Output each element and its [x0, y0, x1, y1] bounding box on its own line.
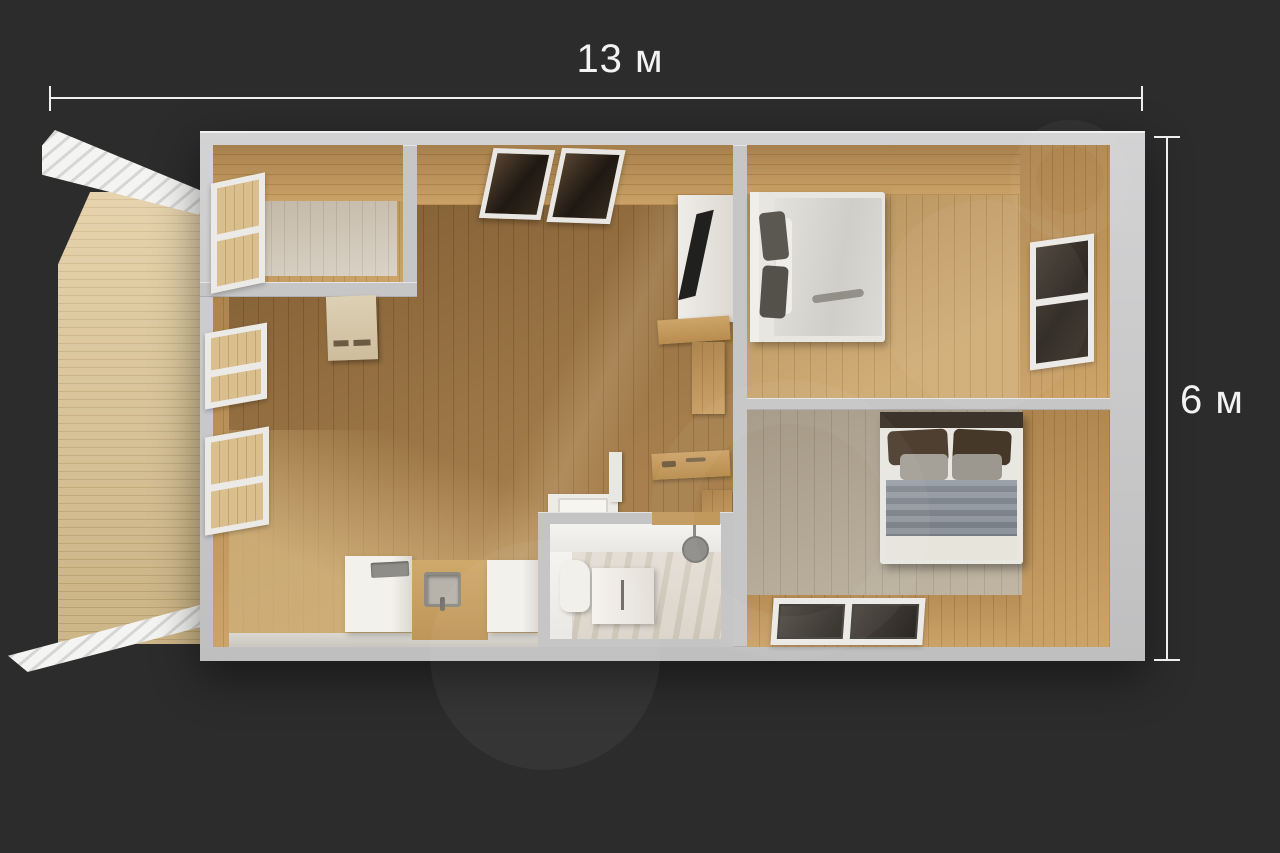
- living-left-window-2: [205, 426, 269, 535]
- wall-shelf-upper: [657, 316, 730, 345]
- dimension-line-vertical: [1166, 137, 1168, 661]
- bed-double-top: [750, 192, 885, 342]
- wall-cabinet: [326, 295, 378, 361]
- dimension-tick-left: [49, 86, 51, 111]
- watermark-circle: [430, 540, 660, 770]
- dimension-tick-bottom: [1154, 659, 1180, 661]
- watermark-circle: [650, 380, 930, 660]
- cabinet-vent-slot: [353, 339, 370, 346]
- entry-right-wall: [403, 145, 417, 296]
- dimension-tick-right: [1141, 86, 1143, 111]
- partition-panel: [609, 452, 622, 502]
- bed-pillow-dark: [759, 265, 789, 319]
- dimension-label-width: 13 м: [540, 34, 700, 84]
- entry-floor: [259, 201, 397, 276]
- bed-pillow-gray: [952, 454, 1002, 480]
- cabinet-vent-slot: [333, 340, 348, 347]
- tv: [678, 210, 714, 300]
- watermark-circle: [1010, 120, 1130, 240]
- bedroom-bottom-right-wall-face: [1022, 410, 1110, 647]
- terrace-deck: [58, 192, 204, 644]
- bed-pillow-dark: [759, 211, 790, 261]
- living-left-window-1: [205, 323, 267, 410]
- bed-headboard-dark: [880, 412, 1023, 428]
- dimension-tick-top: [1154, 136, 1180, 138]
- cooktop: [371, 561, 410, 578]
- tv-panel: [678, 195, 733, 322]
- dimension-label-height: 6 м: [1180, 375, 1270, 425]
- dimension-line-horizontal: [50, 97, 1143, 99]
- entry-window: [211, 172, 265, 293]
- bed-headboard: [750, 192, 759, 342]
- floor-plan-image: 13 м 6 м: [0, 0, 1280, 853]
